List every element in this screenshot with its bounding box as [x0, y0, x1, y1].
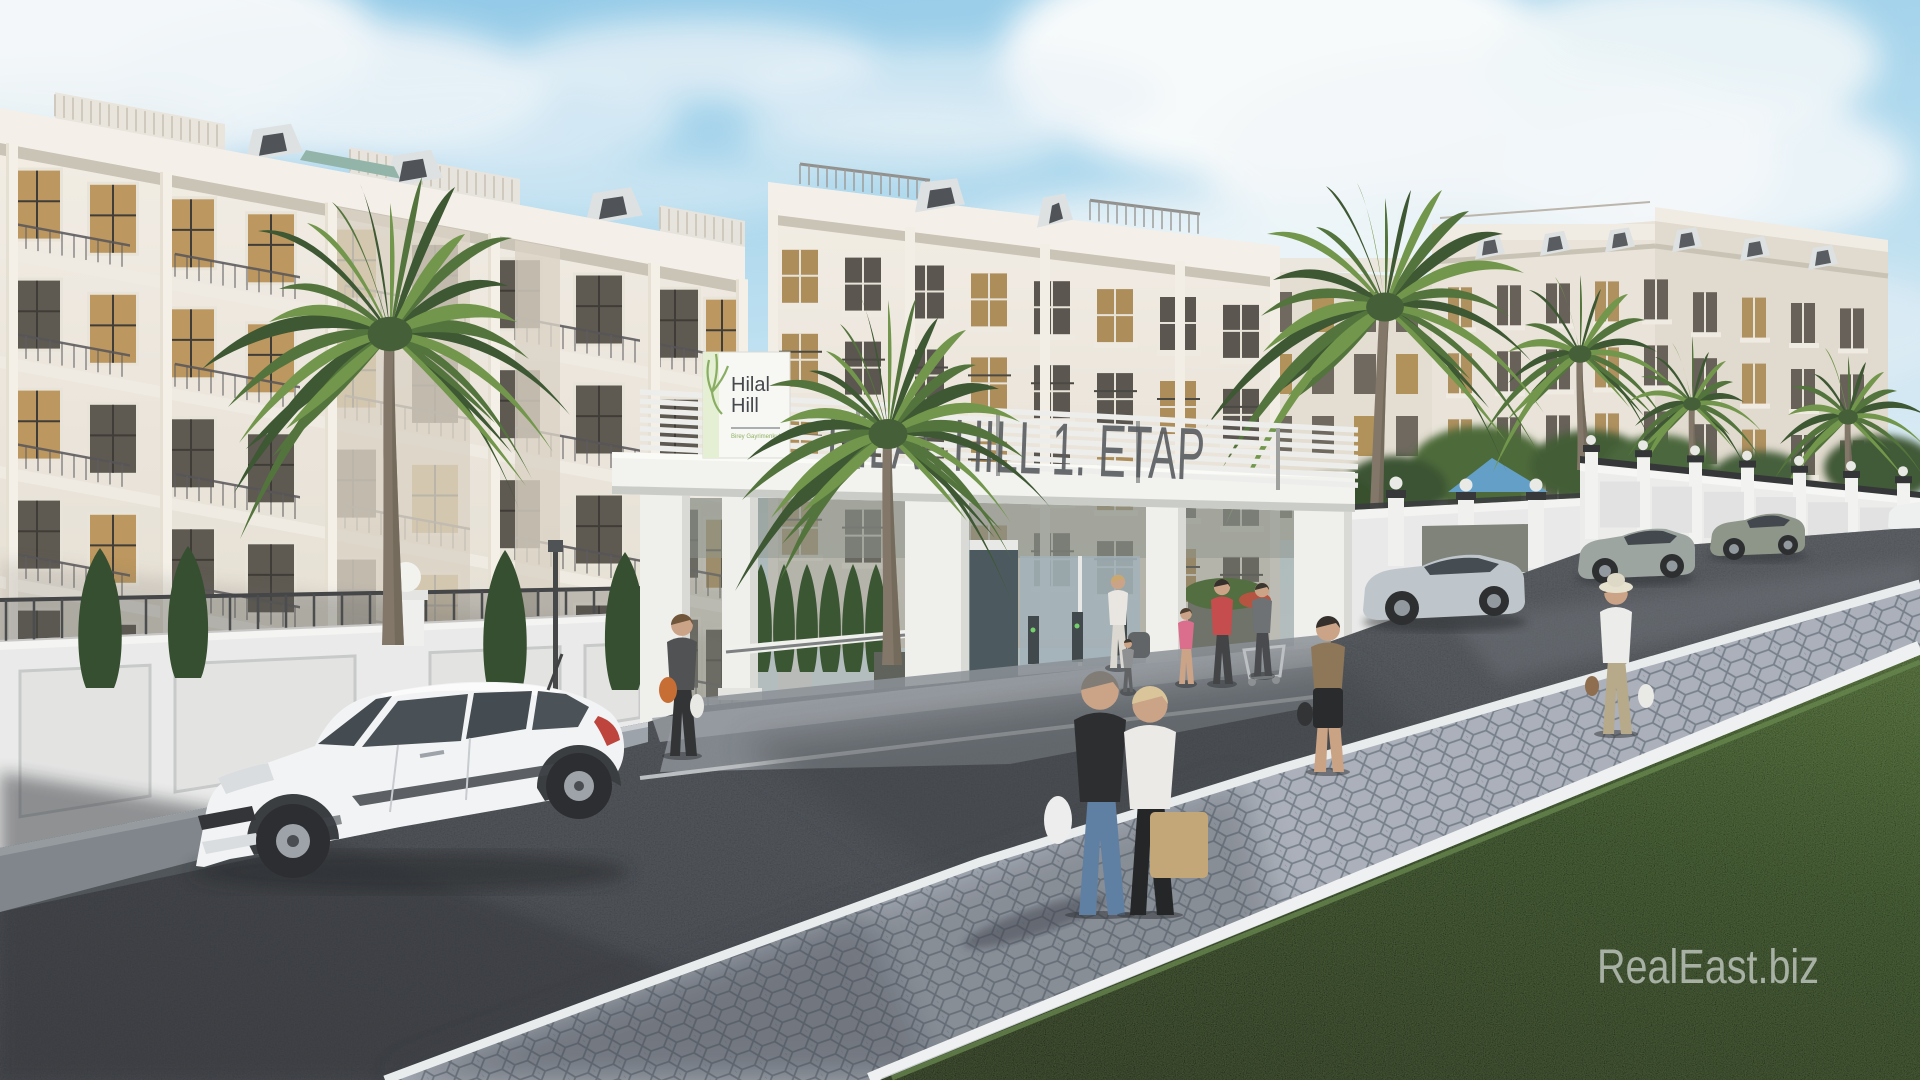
svg-text:RealEast.biz: RealEast.biz — [1597, 941, 1819, 994]
